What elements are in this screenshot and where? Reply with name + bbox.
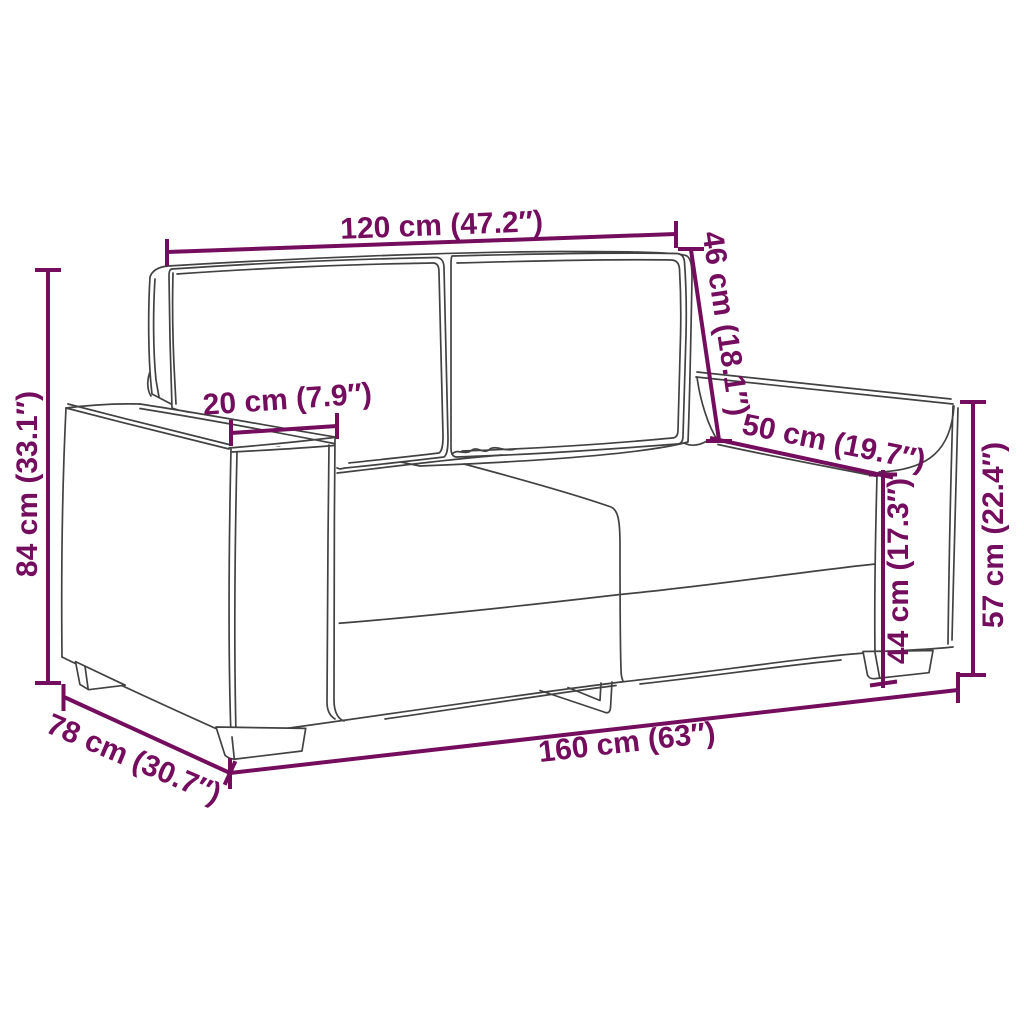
svg-text:44 cm (17.3″): 44 cm (17.3″) xyxy=(882,478,915,664)
svg-text:57 cm (22.4″): 57 cm (22.4″) xyxy=(977,442,1010,628)
svg-text:84 cm (33.1″): 84 cm (33.1″) xyxy=(11,391,44,577)
